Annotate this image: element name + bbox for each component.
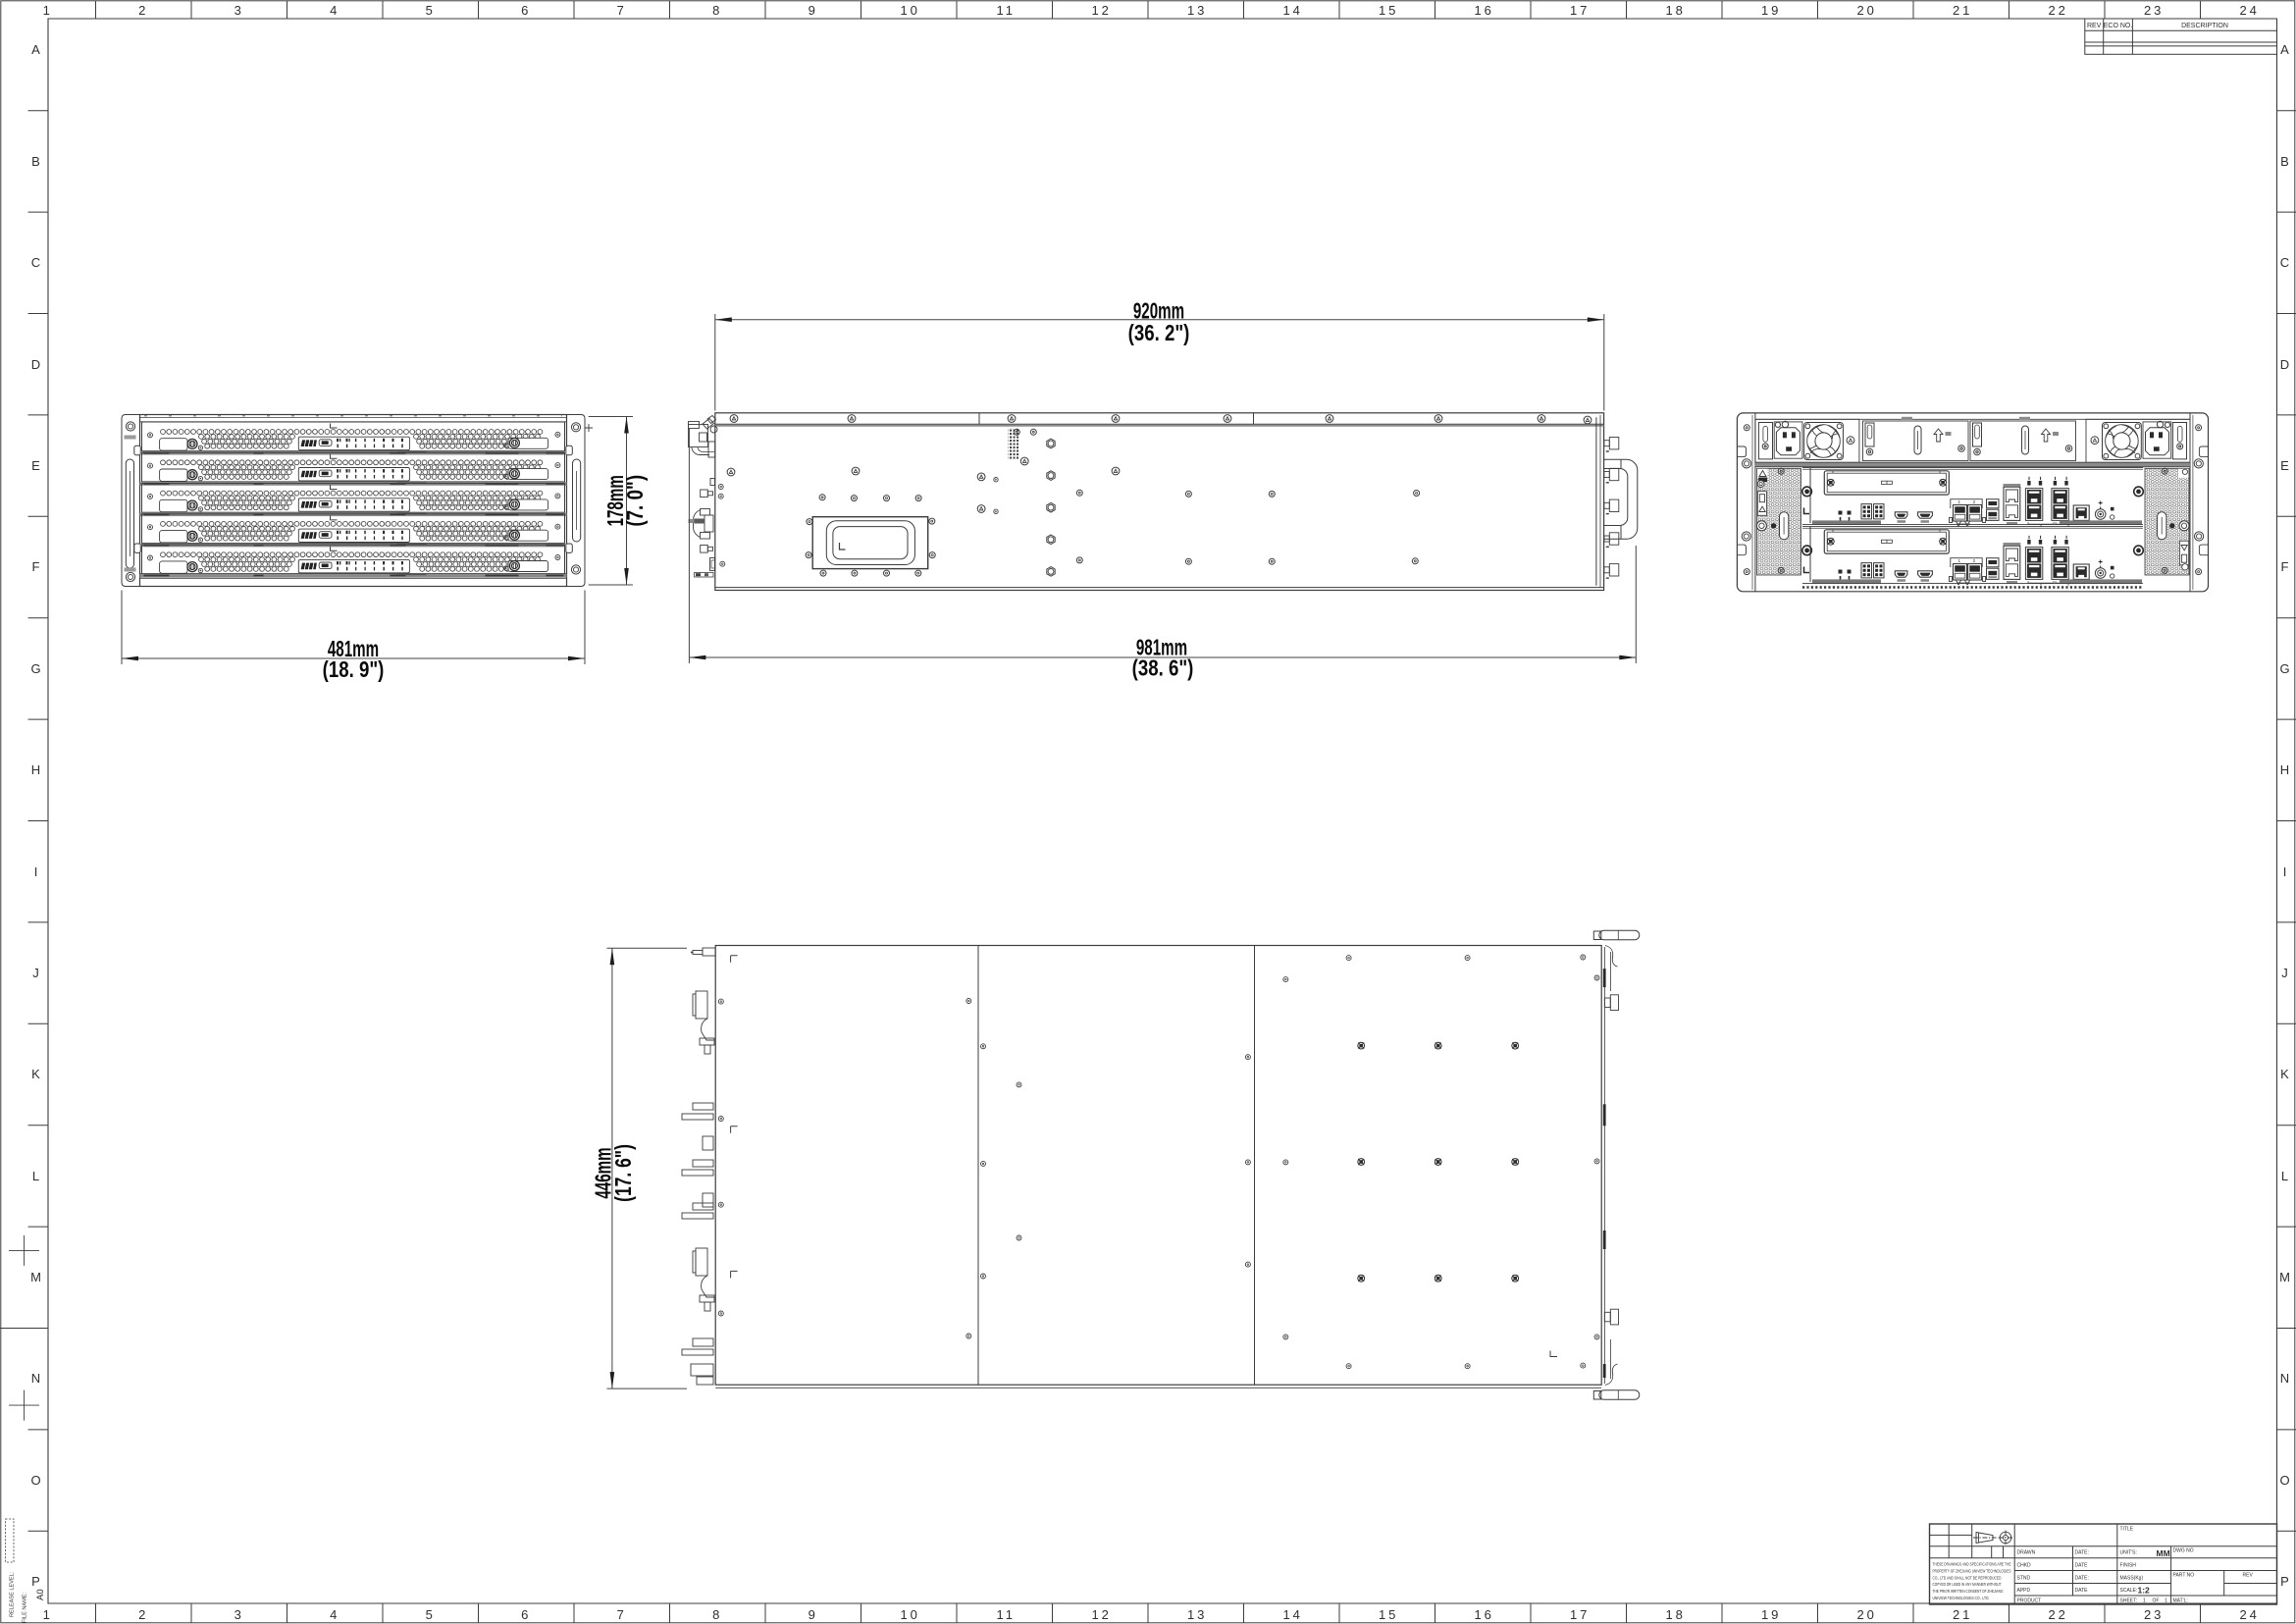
svg-text:19: 19 [1761,1607,1781,1622]
svg-text:4: 4 [330,3,339,18]
svg-text:24: 24 [2239,3,2259,18]
svg-text:5: 5 [426,1607,436,1622]
svg-text:J: J [2281,966,2291,980]
svg-text:7: 7 [617,3,627,18]
svg-text:DATE: DATE [2075,1563,2089,1569]
svg-text:6: 6 [521,1607,531,1622]
svg-text:7: 7 [617,1607,627,1622]
svg-text:(17. 6"): (17. 6") [611,1144,637,1202]
svg-text:22: 22 [2048,3,2067,18]
svg-text:21: 21 [1953,3,1972,18]
svg-text:SCALE:: SCALE: [2120,1588,2138,1594]
svg-text:9: 9 [809,1607,818,1622]
svg-text:D: D [2280,357,2292,372]
svg-text:ECO NO.: ECO NO. [2104,23,2133,29]
svg-text:8: 8 [712,3,722,18]
svg-text:K: K [31,1067,43,1081]
svg-text:J: J [32,966,42,980]
svg-text:E: E [2280,458,2292,473]
svg-text:13: 13 [1187,3,1207,18]
svg-text:4: 4 [330,1607,339,1622]
svg-text:F: F [32,559,43,574]
svg-text:16: 16 [1474,1607,1493,1622]
svg-text:MAT'L:: MAT'L: [2173,1598,2188,1604]
svg-text:23: 23 [2144,1607,2164,1622]
svg-text:OF: OF [2153,1598,2160,1604]
svg-text:MM: MM [2157,1548,2170,1558]
svg-text:3: 3 [235,1607,244,1622]
svg-text:APPD: APPD [2017,1588,2031,1594]
svg-text:17: 17 [1570,1607,1590,1622]
svg-text:K: K [2280,1067,2292,1081]
svg-text:21: 21 [1953,1607,1972,1622]
svg-text:(7. 0"): (7. 0") [623,475,649,527]
svg-text:(18. 9"): (18. 9") [323,657,385,683]
svg-text:REV: REV [2243,1573,2254,1579]
svg-text:I: I [2283,864,2290,879]
svg-text:B: B [31,154,43,169]
svg-text:12: 12 [1091,3,1111,18]
svg-text:20: 20 [1856,3,1876,18]
svg-text:DATE: DATE [2075,1588,2089,1594]
svg-text:(38. 6"): (38. 6") [1132,655,1194,681]
svg-text:UNIT'S:: UNIT'S: [2120,1550,2137,1556]
svg-text:A0: A0 [35,1589,46,1600]
svg-text:FINISH: FINISH [2120,1563,2137,1569]
svg-text:17: 17 [1570,3,1590,18]
svg-text:O: O [2279,1473,2292,1488]
svg-text:SHEET:: SHEET: [2120,1598,2138,1604]
svg-text:M: M [30,1270,44,1284]
svg-text:1: 1 [2165,1598,2167,1604]
svg-text:8: 8 [712,1607,722,1622]
svg-text:15: 15 [1379,3,1398,18]
svg-text:1:2: 1:2 [2138,1585,2151,1595]
svg-text:MASS(Kg): MASS(Kg) [2120,1576,2144,1582]
svg-text:10: 10 [900,3,919,18]
svg-text:A: A [2280,42,2292,57]
svg-text:L: L [2281,1169,2291,1183]
svg-text:5: 5 [426,3,436,18]
svg-text:G: G [30,661,43,676]
svg-text:FILE NAME:: FILE NAME: [23,1592,28,1623]
svg-text:N: N [2280,1371,2292,1386]
svg-text:B: B [2280,154,2292,169]
svg-text:RELEASE LEVEL:: RELEASE LEVEL: [10,1571,16,1617]
svg-text:A: A [31,42,43,57]
svg-text:20: 20 [1856,1607,1876,1622]
svg-text:L: L [32,1169,42,1183]
svg-text:H: H [31,762,43,777]
svg-text:G: G [2279,661,2292,676]
svg-text:15: 15 [1379,1607,1398,1622]
svg-text:13: 13 [1187,1607,1207,1622]
svg-text:STND: STND [2017,1576,2031,1582]
svg-text:18: 18 [1665,3,1685,18]
svg-text:22: 22 [2048,1607,2067,1622]
svg-text:COPYED OR USED IN ANY MANNER W: COPYED OR USED IN ANY MANNER WITHOUT [1933,1582,2002,1587]
svg-text:DRAWN: DRAWN [2017,1550,2036,1556]
svg-text:2: 2 [138,3,148,18]
svg-text:THE PRIOR WRITTEN CONSENT OF Z: THE PRIOR WRITTEN CONSENT OF ZHEJIANG [1933,1589,2004,1594]
svg-text:3: 3 [235,3,244,18]
svg-text:CO., LTD AND SHALL NOT BE REPR: CO., LTD AND SHALL NOT BE REPRODUCED [1933,1575,2002,1580]
svg-text:M: M [2279,1270,2293,1284]
svg-text:THESE DRAWINGS AND SPECIFICATI: THESE DRAWINGS AND SPECIFICATIONS ARE TH… [1933,1562,2011,1567]
svg-text:C: C [2280,255,2292,270]
svg-text:11: 11 [996,1607,1016,1622]
svg-text:11: 11 [996,3,1016,18]
svg-text:DATE:: DATE: [2075,1550,2089,1556]
svg-text:C: C [31,255,43,270]
svg-text:23: 23 [2144,3,2164,18]
svg-text:P: P [2280,1574,2292,1589]
svg-text:10: 10 [900,1607,919,1622]
svg-text:REV: REV [2087,23,2102,29]
svg-text:D: D [31,357,43,372]
svg-text:TITLE: TITLE [2120,1527,2134,1533]
svg-text:2: 2 [138,1607,148,1622]
svg-text:PRODUCT: PRODUCT [2017,1598,2042,1604]
svg-text:N: N [31,1371,43,1386]
svg-text:12: 12 [1091,1607,1111,1622]
svg-text:CHKD: CHKD [2017,1563,2032,1569]
svg-text:24: 24 [2239,1607,2259,1622]
svg-text:1: 1 [2143,1598,2146,1604]
svg-text:H: H [2280,762,2292,777]
svg-text:E: E [31,458,43,473]
svg-text:O: O [30,1473,43,1488]
svg-text:DESCRIPTION: DESCRIPTION [2181,23,2228,29]
svg-text:6: 6 [521,3,531,18]
svg-text:(36. 2"): (36. 2") [1128,321,1190,346]
svg-text:F: F [2281,559,2292,574]
svg-text:14: 14 [1282,1607,1302,1622]
svg-text:16: 16 [1474,3,1493,18]
svg-text:18: 18 [1665,1607,1685,1622]
svg-text:PART NO: PART NO [2173,1573,2195,1579]
svg-text:P: P [31,1574,43,1589]
svg-text:19: 19 [1761,3,1781,18]
svg-text:9: 9 [809,3,818,18]
svg-text:UNIVIEW TECHNOLOGIES CO., LTD.: UNIVIEW TECHNOLOGIES CO., LTD. [1933,1596,1990,1600]
svg-text:1: 1 [43,1607,53,1622]
svg-text:DWG NO: DWG NO [2173,1548,2194,1554]
svg-text:14: 14 [1282,3,1302,18]
svg-text:PROPERTY OF ZHEJIANG UNIVIEW T: PROPERTY OF ZHEJIANG UNIVIEW TECHNOLOGIE… [1933,1568,2011,1573]
svg-text:I: I [34,864,41,879]
svg-text:DATE:: DATE: [2075,1576,2089,1582]
svg-text:1: 1 [43,3,53,18]
